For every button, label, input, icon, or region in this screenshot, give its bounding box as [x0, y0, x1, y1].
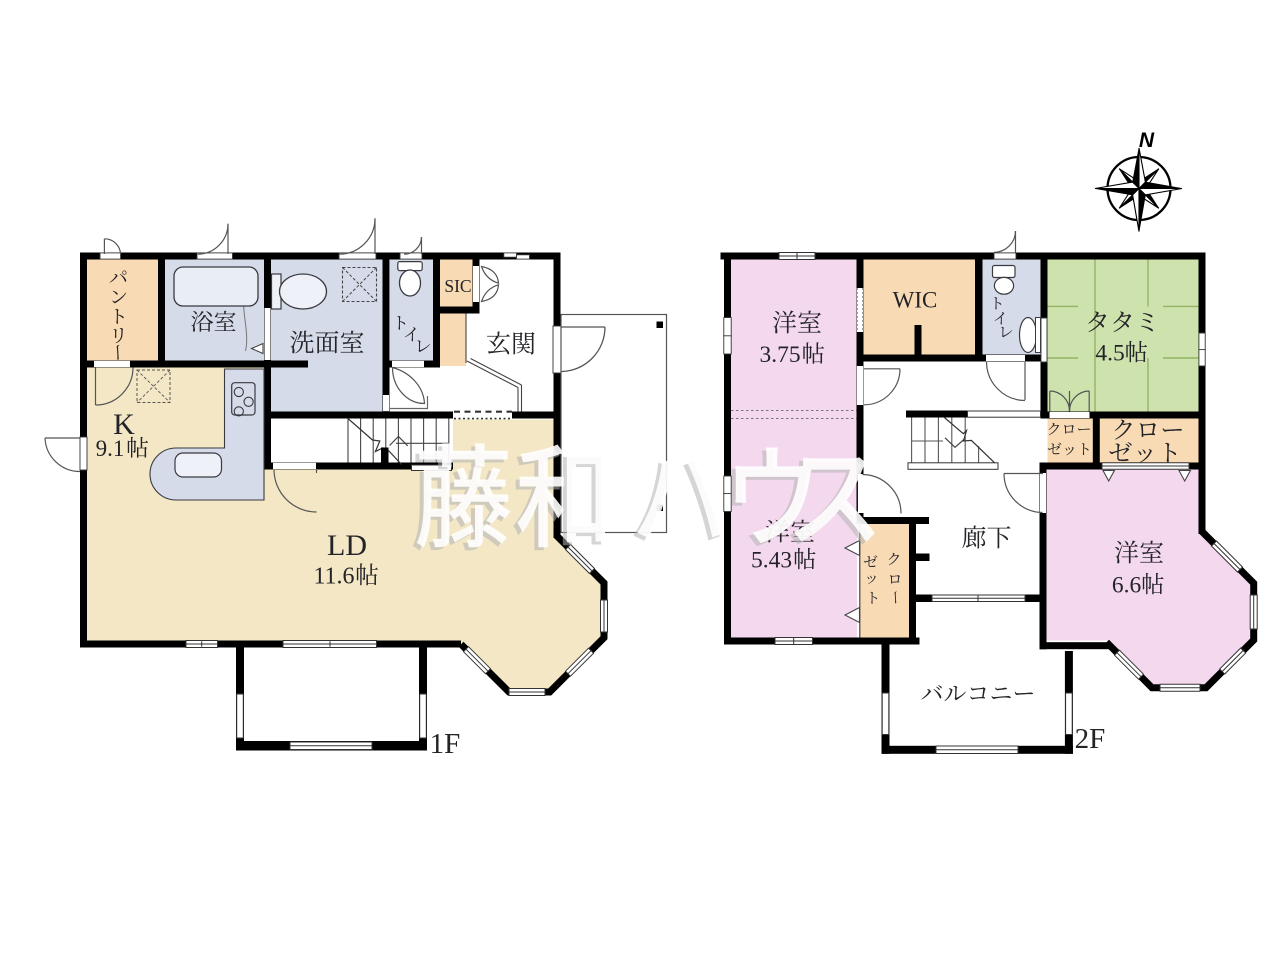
- svg-text:6.6: 6.6: [1112, 573, 1142, 599]
- svg-text:3.75: 3.75: [759, 342, 800, 368]
- svg-text:5.43: 5.43: [751, 548, 792, 574]
- svg-text:N: N: [1139, 129, 1155, 152]
- svg-text:4.5: 4.5: [1095, 341, 1124, 367]
- svg-text:1F: 1F: [430, 728, 461, 760]
- svg-text:2F: 2F: [1075, 723, 1106, 755]
- svg-text:LD: LD: [327, 529, 367, 562]
- svg-text:SIC: SIC: [444, 276, 471, 296]
- svg-text:9.1: 9.1: [96, 436, 125, 461]
- svg-text:11.6: 11.6: [313, 564, 354, 590]
- svg-text:WIC: WIC: [893, 288, 938, 313]
